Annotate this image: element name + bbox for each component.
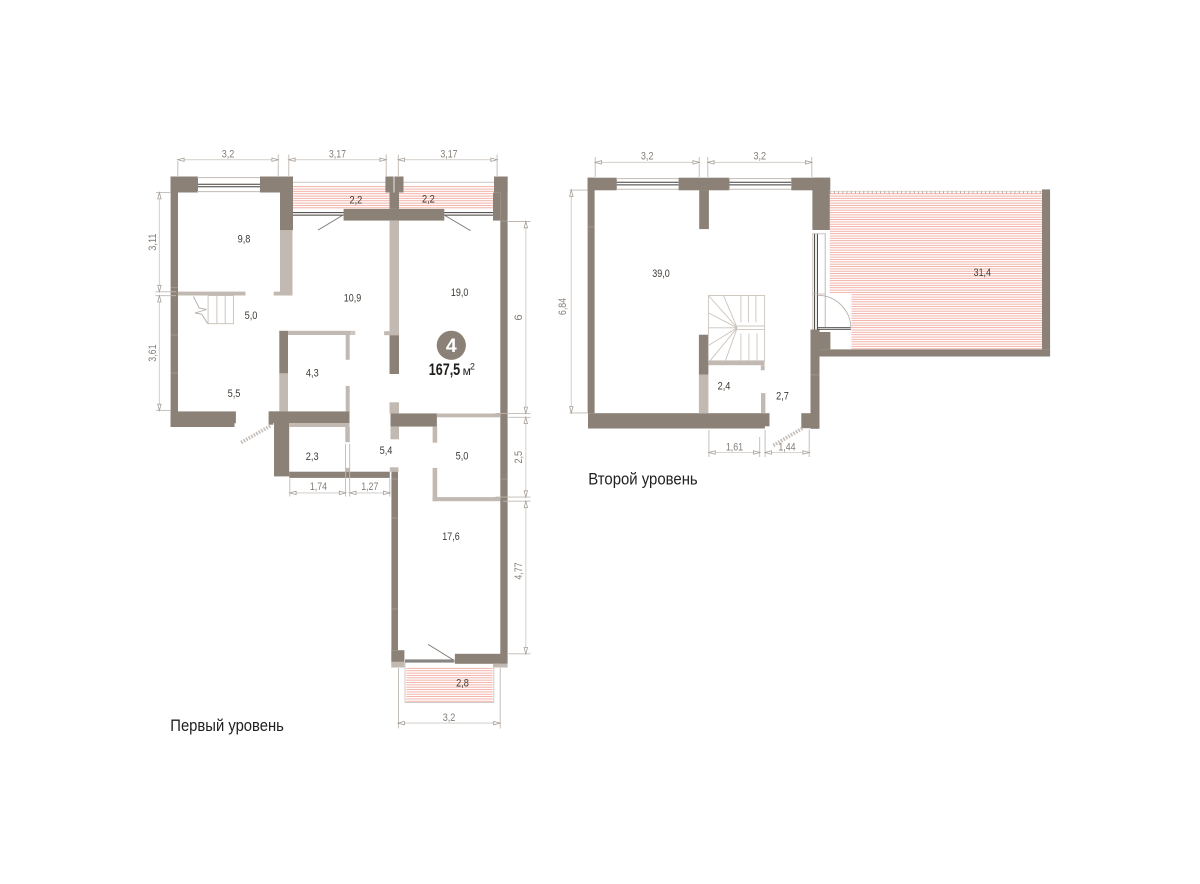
svg-text:3,2: 3,2: [641, 151, 654, 163]
svg-text:1,74: 1,74: [310, 481, 327, 493]
svg-text:5,0: 5,0: [456, 450, 469, 462]
svg-text:4,77: 4,77: [513, 562, 525, 579]
svg-text:3,17: 3,17: [329, 148, 346, 160]
svg-text:3,2: 3,2: [222, 148, 235, 160]
svg-text:3,61: 3,61: [147, 345, 159, 362]
svg-text:2,2: 2,2: [422, 194, 435, 206]
svg-text:5,4: 5,4: [380, 445, 393, 457]
svg-text:3,17: 3,17: [440, 148, 457, 160]
svg-text:1,44: 1,44: [778, 442, 795, 454]
svg-text:4,3: 4,3: [306, 368, 319, 380]
svg-text:2,4: 2,4: [718, 380, 731, 392]
svg-text:Первый уровень: Первый уровень: [170, 717, 284, 735]
svg-text:2,7: 2,7: [776, 390, 789, 402]
svg-text:10,9: 10,9: [344, 292, 361, 304]
svg-text:17,6: 17,6: [442, 531, 459, 543]
svg-text:4: 4: [446, 335, 457, 357]
svg-text:2: 2: [470, 362, 475, 372]
svg-text:6: 6: [513, 314, 525, 320]
svg-text:5,0: 5,0: [245, 310, 258, 322]
svg-text:19,0: 19,0: [451, 287, 468, 299]
svg-text:167,5: 167,5: [429, 360, 461, 379]
svg-text:3,2: 3,2: [754, 151, 767, 163]
svg-text:1,61: 1,61: [726, 442, 743, 454]
svg-text:6,84: 6,84: [557, 298, 569, 315]
svg-text:5,5: 5,5: [228, 388, 241, 400]
svg-text:39,0: 39,0: [652, 268, 669, 280]
svg-text:3,2: 3,2: [443, 712, 456, 724]
svg-text:31,4: 31,4: [974, 267, 991, 279]
svg-text:9,8: 9,8: [238, 233, 251, 245]
svg-text:2,8: 2,8: [456, 677, 469, 689]
svg-text:3,11: 3,11: [147, 234, 159, 251]
svg-text:2,5: 2,5: [513, 451, 525, 464]
svg-text:1,27: 1,27: [361, 481, 378, 493]
svg-text:2,3: 2,3: [306, 451, 319, 463]
svg-text:2,2: 2,2: [350, 194, 363, 206]
svg-text:Второй уровень: Второй уровень: [588, 471, 697, 489]
